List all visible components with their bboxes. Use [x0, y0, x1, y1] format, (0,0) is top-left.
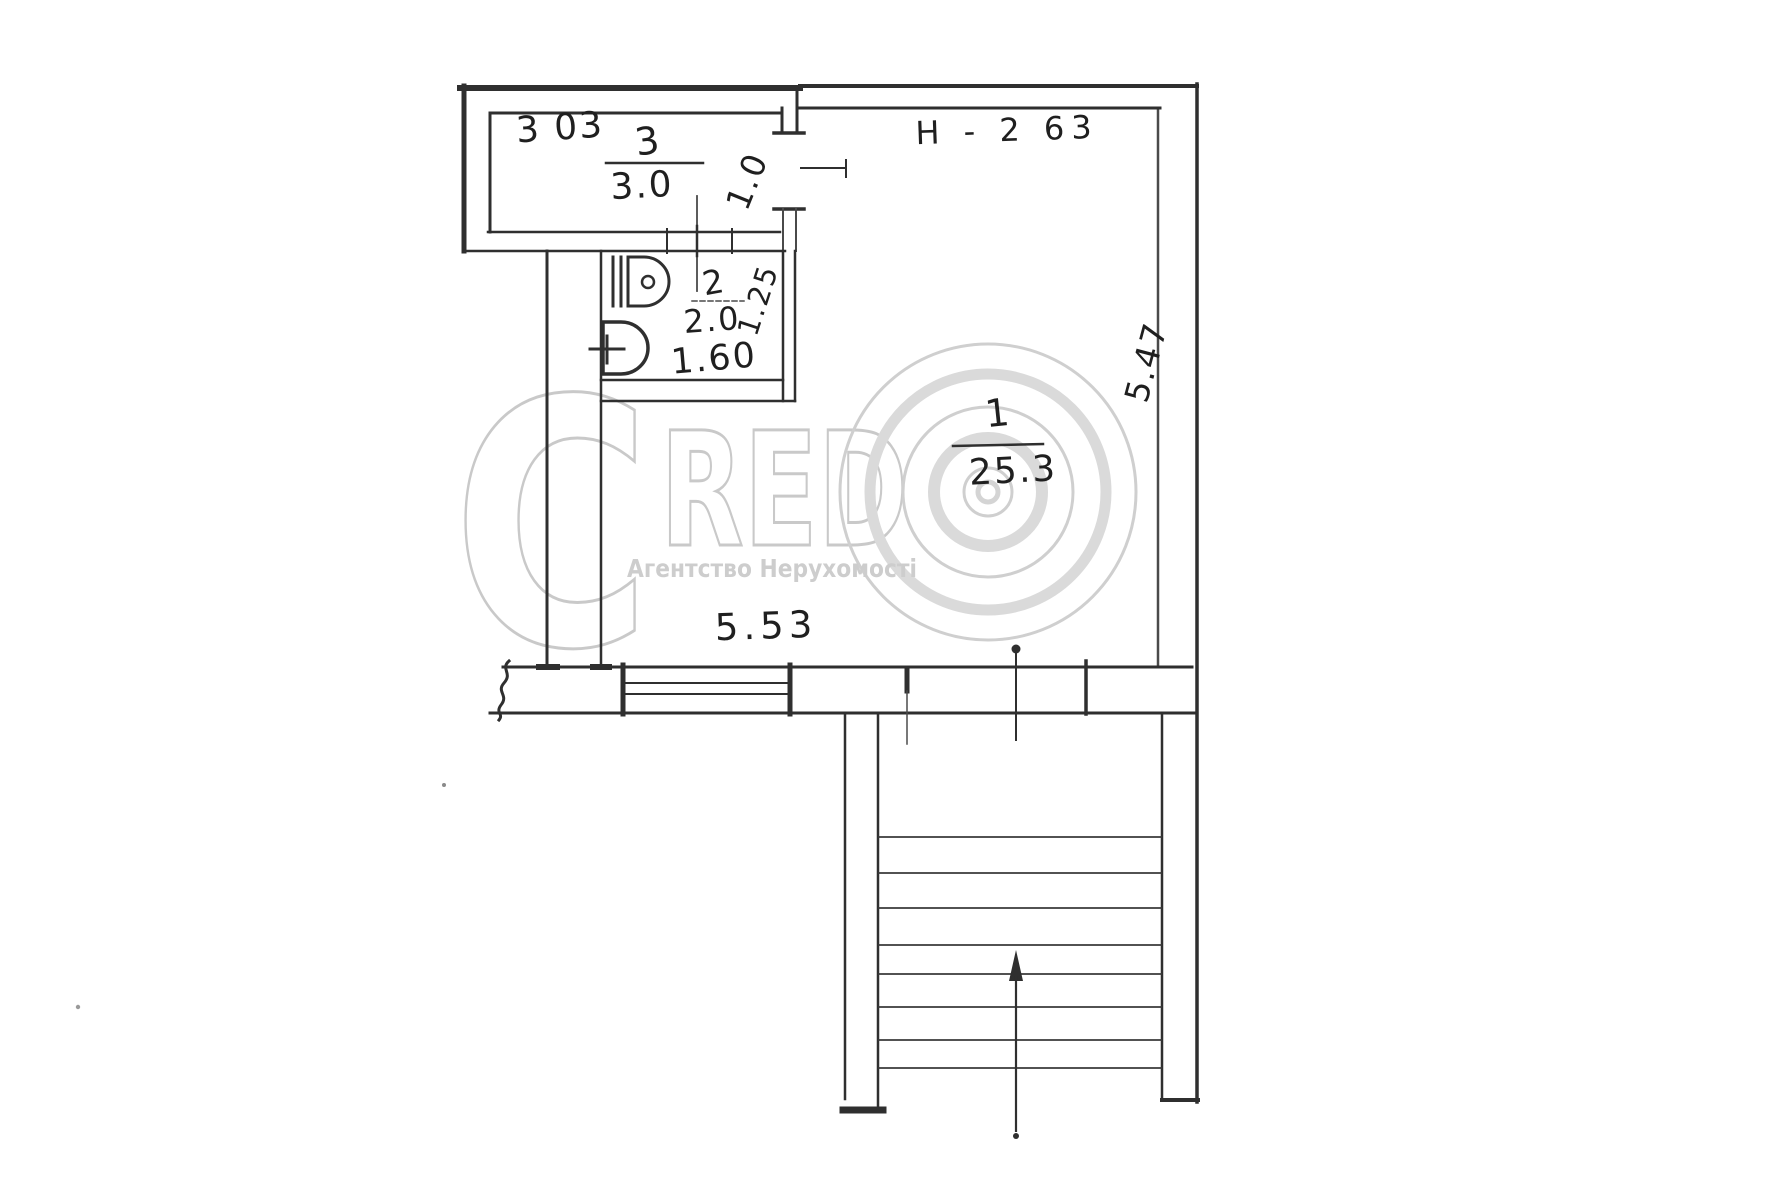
watermark-agency-text: Агентство Нерухомості [627, 554, 917, 583]
toilet-icon [613, 257, 669, 306]
room1-number-label: 1 [983, 390, 1014, 436]
room1-area-label: 25.3 [968, 448, 1058, 494]
staircase [843, 713, 1198, 1110]
overall-width-label: 5.53 [714, 603, 818, 650]
ceiling-height-label: Н - 2 63 [915, 108, 1099, 152]
scan-specks [76, 783, 446, 1009]
room3-width-label: 3 03 [515, 104, 606, 151]
room3-area-label: 3.0 [609, 164, 674, 208]
scanned-floor-plan-page: C RED Агентство Нерухомості [0, 0, 1772, 1181]
floor-plan-drawing: C RED Агентство Нерухомості [0, 0, 1772, 1181]
bath-length-label: 1.60 [669, 335, 758, 382]
stair-steps [879, 837, 1161, 1068]
stairs-direction-arrow [1009, 645, 1023, 1140]
